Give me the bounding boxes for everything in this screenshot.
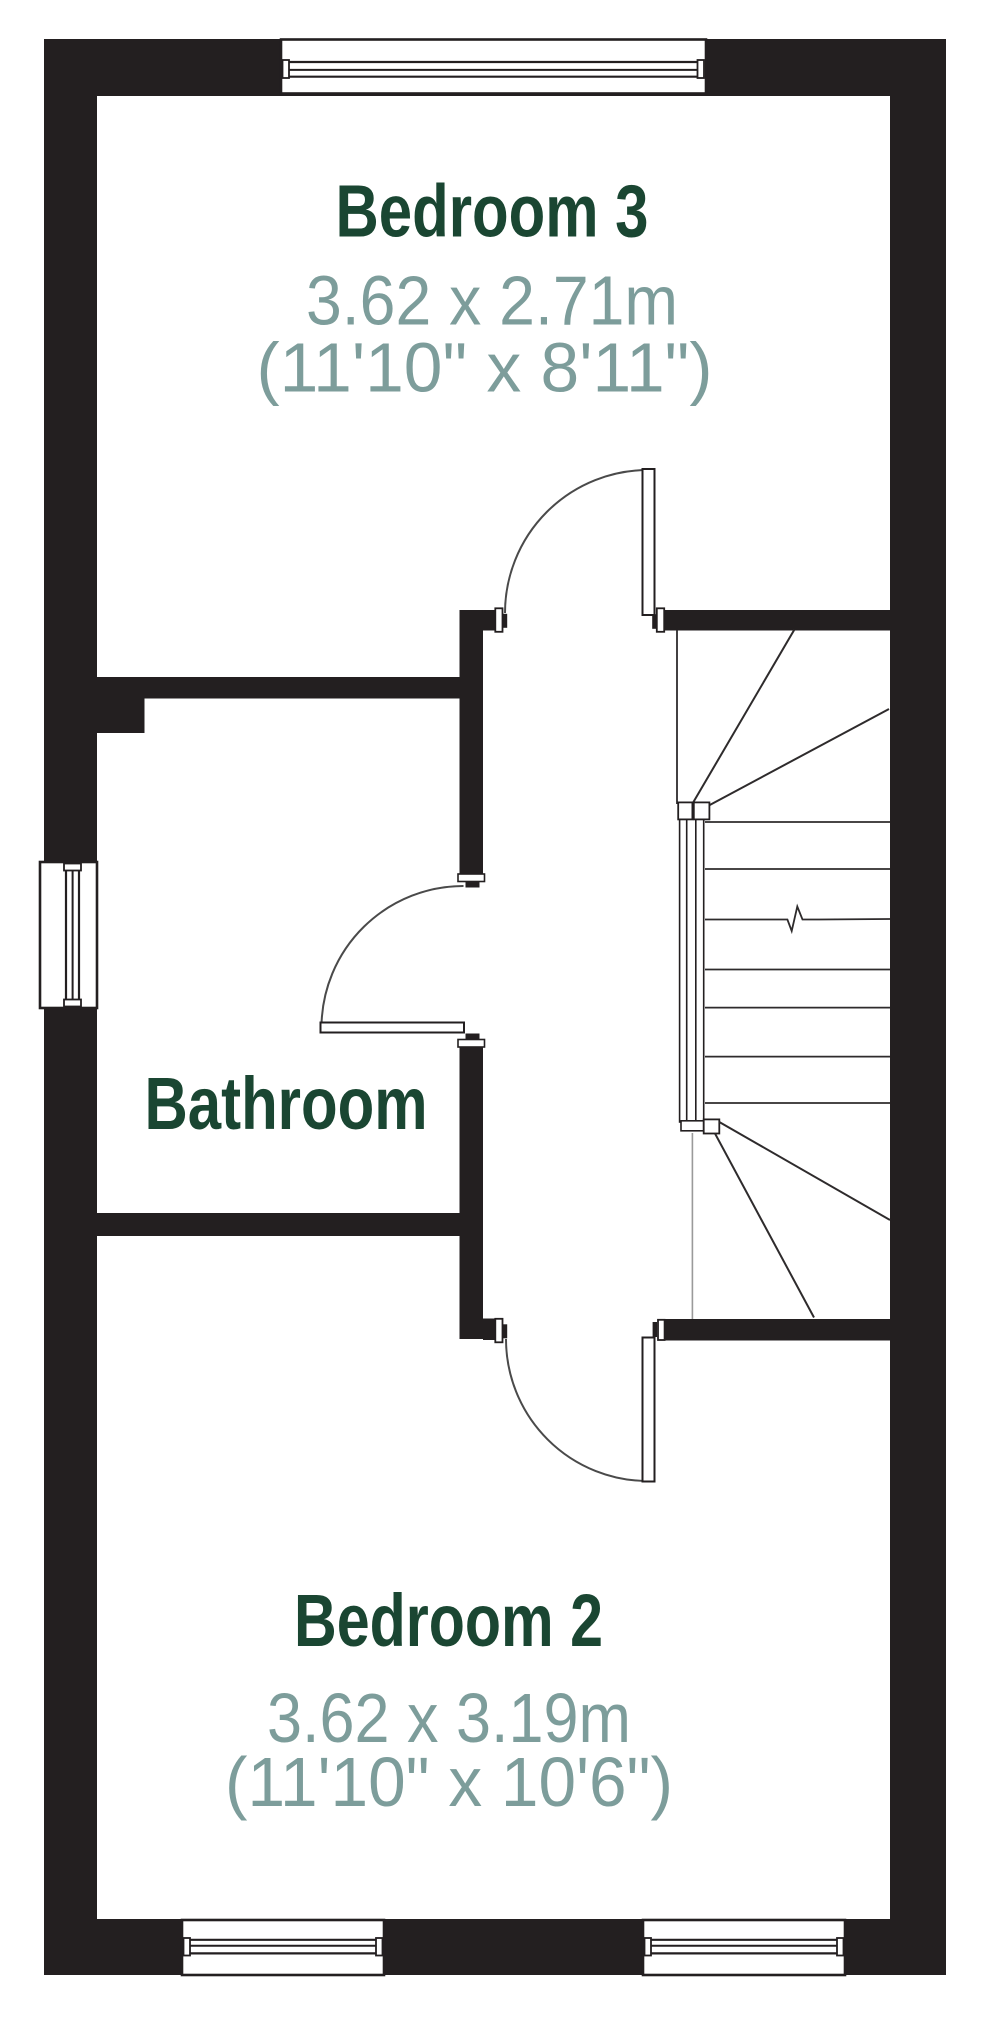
- svg-text:Bathroom: Bathroom: [145, 1062, 428, 1145]
- svg-text:Bedroom 3: Bedroom 3: [336, 170, 649, 253]
- svg-text:(11'10" x 10'6"): (11'10" x 10'6"): [225, 1743, 673, 1821]
- svg-text:Bedroom 2: Bedroom 2: [294, 1579, 603, 1662]
- svg-text:(11'10" x 8'11"): (11'10" x 8'11"): [257, 329, 713, 407]
